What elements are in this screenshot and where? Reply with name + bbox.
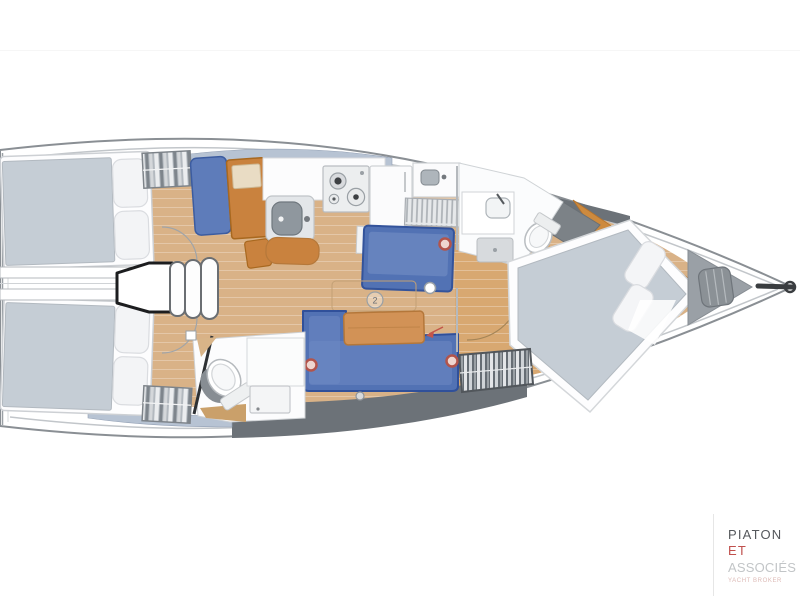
- logo: PIATON ET ASSOCIÉS YACHT BROKER: [713, 514, 799, 596]
- galley-second-sink: [413, 163, 460, 197]
- salon-settee-upper: [355, 225, 454, 291]
- table-leg-mount: [425, 283, 436, 294]
- nav-station: [190, 154, 270, 242]
- red-marker: [447, 356, 458, 367]
- sink-basin: [272, 202, 302, 235]
- wardrobe-forward: [459, 349, 533, 392]
- vanity-cabinet: [250, 386, 290, 413]
- bow-area: [688, 250, 795, 325]
- cabinet-handle: [256, 407, 259, 410]
- marker-2-label: 2: [372, 296, 377, 306]
- wardrobe-aft-starboard: [142, 386, 192, 423]
- floor-plan-canvas: 2: [0, 0, 800, 600]
- dish-rack: [405, 198, 461, 227]
- aft-cabin-starboard: [0, 297, 154, 415]
- burner-center: [332, 197, 335, 200]
- red-marker: [440, 239, 451, 250]
- aft-head: [186, 331, 305, 422]
- floor-marker-2: 2: [367, 292, 383, 308]
- sink-faucet: [442, 175, 447, 180]
- sink-basin-small: [421, 170, 439, 185]
- companionway-step: [185, 260, 201, 318]
- burner-center: [353, 194, 359, 200]
- anchor-bag: [698, 266, 735, 308]
- sink-basin: [486, 198, 510, 218]
- yacht-floor-plan: 2: [0, 0, 800, 600]
- bowsprit-bar: [758, 286, 793, 287]
- stove-knob: [360, 171, 364, 175]
- galley-bench: [266, 237, 320, 265]
- companionway-step: [201, 258, 218, 319]
- wardrobe-aft-port: [142, 151, 192, 188]
- port-berth-mattress: [2, 158, 115, 266]
- nav-seat: [190, 156, 231, 235]
- sink-drain: [278, 216, 283, 221]
- galley-stove: [323, 166, 369, 212]
- logo-line-piaton: PIATON: [728, 527, 799, 543]
- pillow: [114, 210, 150, 259]
- aft-cabin-port: [0, 151, 154, 269]
- sink-faucet: [304, 216, 310, 222]
- logo-line-associes: ASSOCIÉS: [728, 560, 799, 576]
- logo-tagline: YACHT BROKER: [728, 578, 799, 584]
- settee-cushion: [367, 232, 448, 277]
- page-divider-line: [0, 50, 800, 51]
- shower-drain: [493, 248, 497, 252]
- galley-sink-unit: [266, 196, 314, 241]
- burner-center: [334, 177, 341, 184]
- starboard-berth-mattress: [2, 303, 115, 411]
- engine-box: [117, 263, 172, 312]
- red-marker: [306, 360, 317, 371]
- head-vanity: [247, 338, 304, 386]
- sofa-cushion: [309, 316, 340, 384]
- door-jamb: [186, 331, 196, 340]
- companionway-step: [170, 262, 185, 316]
- chart-table-pad: [232, 164, 262, 189]
- locker-latch: [356, 392, 364, 400]
- logo-line-et: ET: [728, 543, 799, 559]
